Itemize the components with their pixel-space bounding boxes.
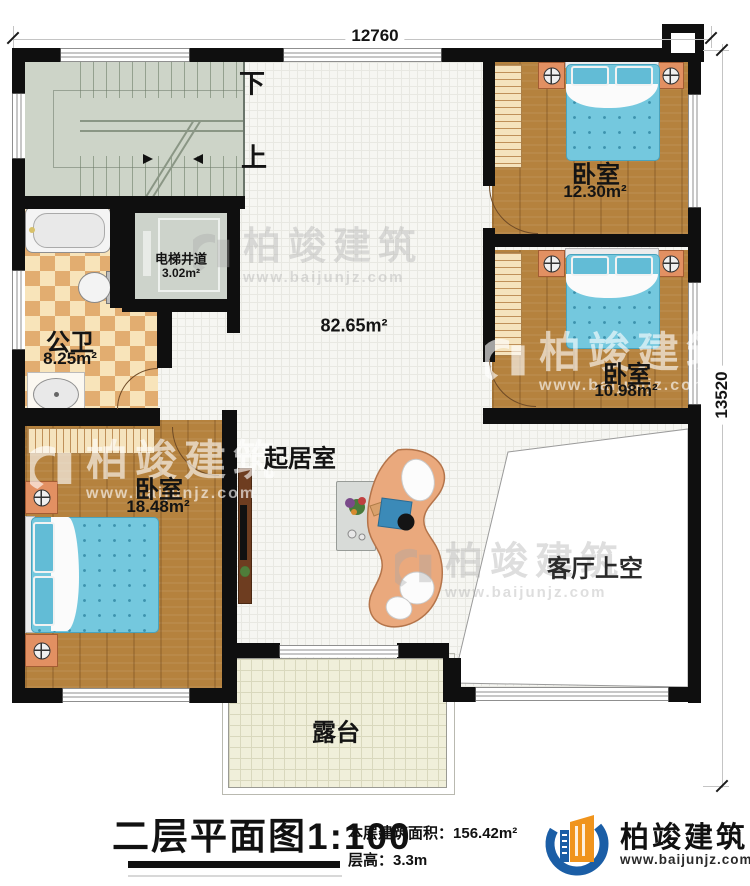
window bbox=[12, 270, 25, 350]
dim-top-value: 12760 bbox=[345, 26, 404, 46]
tv-icon bbox=[240, 505, 247, 560]
dim-ext bbox=[703, 50, 729, 51]
title-text: 二层平面图 bbox=[112, 816, 307, 857]
wardrobe bbox=[492, 64, 522, 168]
living-room-area: 82.65m² bbox=[320, 316, 387, 337]
stair-rail bbox=[80, 120, 245, 132]
nightstand bbox=[657, 62, 684, 89]
wall bbox=[483, 48, 495, 186]
bed bbox=[565, 58, 659, 160]
wall bbox=[157, 306, 172, 368]
stairwell bbox=[25, 62, 245, 196]
stair-arrow-left-icon bbox=[193, 154, 203, 164]
lamp-icon bbox=[543, 255, 560, 272]
elevator-area: 3.02m² bbox=[162, 266, 200, 280]
dim-ext bbox=[703, 786, 729, 787]
wall bbox=[483, 408, 701, 424]
stair-up-label: 上 bbox=[241, 138, 267, 175]
floor-area-value: 156.42m² bbox=[453, 825, 517, 842]
stair-arrow-right-icon bbox=[143, 154, 153, 164]
bathtub bbox=[25, 206, 111, 253]
lamp-icon bbox=[33, 642, 50, 659]
window bbox=[475, 687, 669, 702]
lamp-icon bbox=[662, 67, 679, 84]
nightstand bbox=[538, 62, 565, 89]
title-underline bbox=[128, 861, 340, 868]
sofa bbox=[356, 446, 456, 644]
stair-down-label: 下 bbox=[239, 64, 265, 101]
window bbox=[12, 93, 25, 159]
wall bbox=[483, 234, 701, 247]
wall bbox=[230, 643, 280, 658]
wall bbox=[447, 687, 475, 702]
nightstand bbox=[25, 634, 58, 667]
floor-area-label: 本层建筑面积： bbox=[348, 825, 453, 842]
brand-name: 柏竣建筑 bbox=[620, 814, 748, 856]
nightstand bbox=[538, 250, 565, 277]
floor-height-value: 3.3m bbox=[393, 852, 427, 869]
wall bbox=[12, 408, 160, 426]
wardrobe bbox=[492, 252, 522, 356]
wardrobe bbox=[27, 428, 155, 454]
nightstand bbox=[657, 250, 684, 277]
wall bbox=[110, 196, 124, 308]
living-room-label: 起居室 bbox=[264, 439, 336, 474]
bathroom-area: 8.25m² bbox=[43, 349, 97, 369]
dim-right-value: 13520 bbox=[712, 365, 732, 424]
bedroom-mid-right-area: 10.98m² bbox=[594, 381, 657, 401]
plant-icon bbox=[240, 566, 250, 577]
bed bbox=[565, 248, 659, 348]
nightstand bbox=[25, 481, 58, 514]
window bbox=[60, 48, 190, 62]
lamp-icon bbox=[33, 489, 50, 506]
window bbox=[688, 94, 701, 208]
wall bbox=[227, 200, 240, 333]
wall bbox=[483, 247, 495, 362]
window bbox=[62, 688, 190, 703]
lamp-icon bbox=[543, 67, 560, 84]
floor-area-line: 本层建筑面积：156.42m² bbox=[348, 822, 517, 843]
lamp-icon bbox=[662, 255, 679, 272]
chimney bbox=[662, 24, 704, 62]
void-label: 客厅上空 bbox=[547, 549, 643, 584]
window bbox=[688, 282, 701, 405]
floor-height-label: 层高： bbox=[348, 852, 393, 869]
terrace-label: 露台 bbox=[312, 713, 360, 748]
floor-height-line: 层高：3.3m bbox=[348, 849, 427, 870]
title-underline-thin bbox=[128, 875, 342, 877]
terrace-sliding-door bbox=[279, 645, 399, 657]
brand-logo-icon bbox=[540, 810, 616, 878]
bedroom-top-right-area: 12.30m² bbox=[563, 182, 626, 202]
brand-url: www.baijunjz.com bbox=[620, 852, 750, 867]
wall bbox=[397, 643, 449, 658]
wall bbox=[12, 196, 245, 209]
tv-cabinet bbox=[238, 468, 252, 604]
wall bbox=[222, 410, 237, 703]
elevator-label: 电梯井道 bbox=[155, 249, 207, 268]
bedroom-bottom-left-area: 18.48m² bbox=[126, 497, 189, 517]
floor-plan: 柏竣建筑 www.baijunjz.com 柏竣建筑 www.baijunjz.… bbox=[0, 0, 750, 886]
window bbox=[283, 48, 442, 62]
bed bbox=[25, 516, 159, 633]
